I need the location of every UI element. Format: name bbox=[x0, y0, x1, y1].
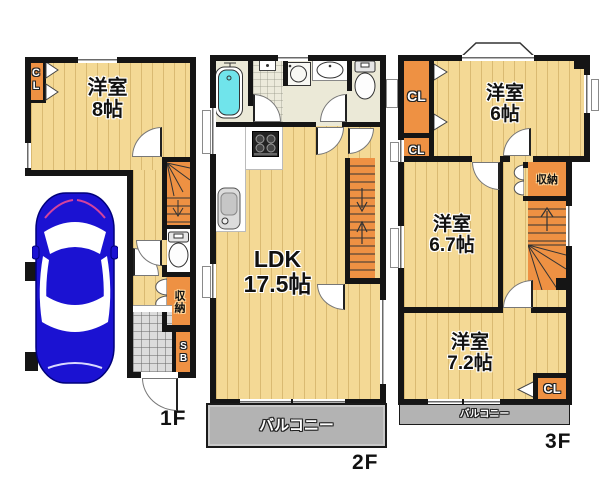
wall-segment bbox=[533, 378, 538, 399]
window bbox=[566, 206, 572, 246]
wall-segment bbox=[133, 372, 141, 378]
floor-label-2f: 2F bbox=[352, 451, 379, 475]
pipe-space bbox=[386, 79, 398, 108]
wall-segment bbox=[429, 61, 434, 161]
balcony-3f-label: バルコニー bbox=[460, 410, 510, 420]
window bbox=[462, 55, 534, 61]
floor-label-1f: 1F bbox=[160, 407, 187, 431]
wall-segment bbox=[167, 225, 190, 229]
room-72-size: 7.2帖 bbox=[447, 354, 492, 375]
room-6-size: 6帖 bbox=[490, 105, 520, 126]
stove bbox=[252, 131, 279, 157]
staircase-3f bbox=[528, 201, 566, 290]
window-sill bbox=[202, 266, 211, 298]
room-67-size: 6.7帖 bbox=[429, 236, 474, 257]
wall-segment bbox=[398, 307, 503, 313]
window bbox=[584, 75, 590, 113]
room-67-name: 洋室 bbox=[433, 215, 471, 236]
wall-segment bbox=[398, 156, 472, 162]
wall-segment bbox=[162, 312, 167, 325]
closet-cl-3f-bottom-label: CL bbox=[538, 378, 566, 399]
window bbox=[78, 57, 117, 63]
balcony-2f-label: バルコニー bbox=[259, 418, 334, 433]
wall-segment bbox=[25, 170, 133, 176]
wall-segment bbox=[531, 307, 566, 313]
wall-segment bbox=[533, 373, 571, 378]
window-sill bbox=[202, 110, 211, 154]
ldk-name: LDK bbox=[254, 247, 301, 272]
wall-segment bbox=[523, 196, 571, 201]
storage-3f-label: 収納 bbox=[528, 166, 566, 194]
washbasin bbox=[312, 59, 349, 81]
room-72-label: 洋室 7.2帖 bbox=[420, 328, 520, 380]
car bbox=[32, 190, 118, 386]
room-72-name: 洋室 bbox=[451, 333, 489, 354]
wall-segment bbox=[533, 156, 590, 162]
wall-segment bbox=[345, 278, 386, 284]
toilet-icon-1f bbox=[166, 231, 191, 269]
shoe-box-label: SB bbox=[176, 334, 190, 371]
staircase-2f bbox=[350, 158, 375, 278]
wall-segment bbox=[162, 272, 190, 277]
wall-segment bbox=[342, 122, 386, 127]
closet-cl-3f-top-label: CL bbox=[404, 86, 429, 106]
window-sill bbox=[390, 142, 399, 162]
ldk-size: 17.5帖 bbox=[244, 272, 312, 297]
storage-double-door-3f bbox=[508, 164, 524, 196]
wall-segment bbox=[566, 156, 572, 405]
floor-plan: CL 収納 SB bbox=[0, 0, 600, 494]
wall-segment bbox=[345, 158, 350, 278]
wall-segment bbox=[162, 325, 196, 332]
wall-segment bbox=[398, 133, 434, 138]
room-67-label: 洋室 6.7帖 bbox=[408, 210, 496, 262]
wall-segment bbox=[347, 61, 352, 91]
balcony-2f: バルコニー bbox=[206, 403, 387, 448]
window bbox=[25, 143, 31, 168]
floor-label-3f: 3F bbox=[545, 430, 572, 454]
room-6-name: 洋室 bbox=[486, 84, 524, 105]
balcony-3f: バルコニー bbox=[399, 404, 570, 425]
window bbox=[380, 300, 386, 384]
wall-segment bbox=[283, 61, 288, 86]
ldk-label: LDK 17.5帖 bbox=[220, 243, 335, 301]
wall-segment bbox=[523, 162, 528, 168]
window bbox=[278, 55, 308, 61]
window-sill bbox=[390, 228, 399, 268]
window-sill bbox=[591, 79, 599, 111]
wall-segment bbox=[162, 157, 196, 162]
room-8-name: 洋室 bbox=[88, 78, 128, 100]
closet-door-triangles-3f bbox=[432, 62, 449, 132]
wall-segment bbox=[216, 122, 316, 127]
wall-segment bbox=[178, 372, 196, 378]
washroom-faucet bbox=[259, 60, 276, 71]
room-8-label: 洋室 8帖 bbox=[55, 72, 160, 128]
room-6-label: 洋室 6帖 bbox=[465, 80, 545, 130]
toilet-icon-2f bbox=[352, 60, 378, 102]
wall-segment bbox=[574, 57, 590, 69]
room-8-size: 8帖 bbox=[92, 100, 123, 122]
washing-machine bbox=[286, 62, 311, 86]
kitchen-sink bbox=[217, 187, 241, 230]
bathtub bbox=[214, 62, 244, 120]
staircase-1f bbox=[167, 160, 190, 226]
